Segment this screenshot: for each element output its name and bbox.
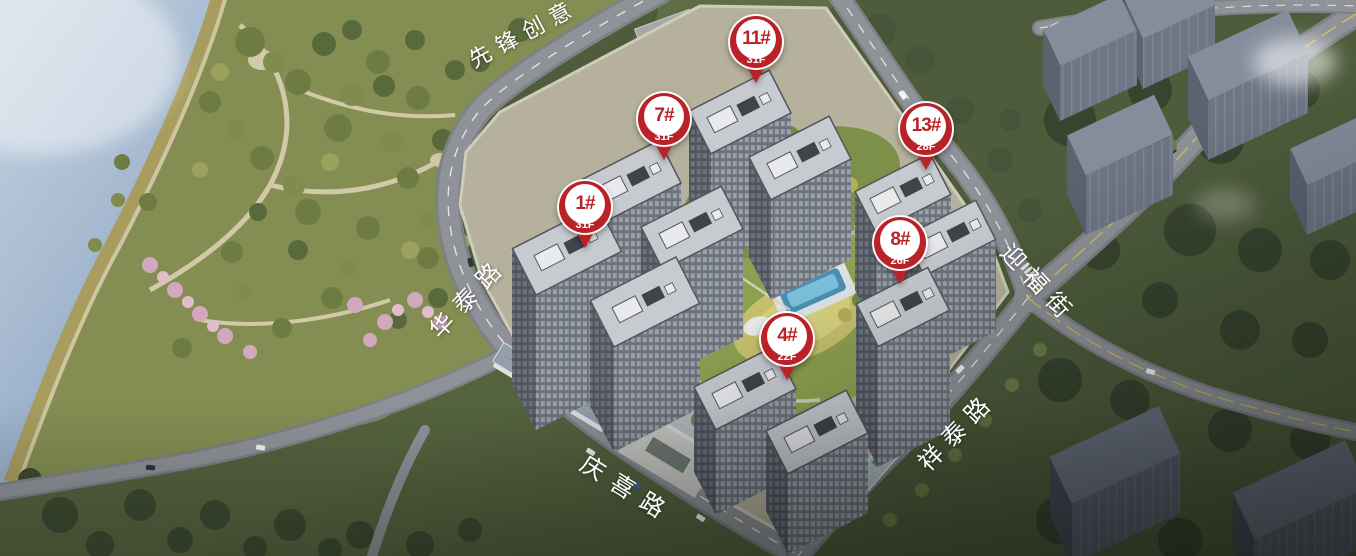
- building-pin-11[interactable]: 11# 31F: [730, 16, 782, 83]
- pin-building-number: 1#: [565, 184, 605, 224]
- building-pin-7[interactable]: 7# 31F: [638, 93, 690, 160]
- building-pin-4[interactable]: 4# 22F: [761, 313, 813, 380]
- pin-head: 1# 31F: [559, 181, 611, 233]
- pin-floor-count: 22F: [761, 351, 813, 363]
- pin-floor-count: 31F: [638, 131, 690, 143]
- pin-floor-count: 31F: [730, 54, 782, 66]
- pin-head: 11# 31F: [730, 16, 782, 68]
- pin-building-number: 8#: [880, 220, 920, 260]
- pin-building-number: 7#: [644, 96, 684, 136]
- pin-building-number: 4#: [767, 316, 807, 356]
- site-plan-map: 先锋创意 华泰路 迎福街 祥泰路 庆喜路 1# 31F 4# 22F 7# 31…: [0, 0, 1356, 556]
- building-pin-8[interactable]: 8# 26F: [874, 217, 926, 284]
- pin-floor-count: 26F: [874, 255, 926, 267]
- pin-building-number: 11#: [736, 19, 776, 59]
- pin-building-number: 13#: [906, 106, 946, 146]
- building-pin-13[interactable]: 13# 28F: [900, 103, 952, 170]
- building-pin-1[interactable]: 1# 31F: [559, 181, 611, 248]
- pin-head: 8# 26F: [874, 217, 926, 269]
- pin-head: 7# 31F: [638, 93, 690, 145]
- pin-floor-count: 28F: [900, 141, 952, 153]
- pin-head: 4# 22F: [761, 313, 813, 365]
- pin-head: 13# 28F: [900, 103, 952, 155]
- pin-floor-count: 31F: [559, 219, 611, 231]
- aerial-rendering: [0, 0, 1356, 556]
